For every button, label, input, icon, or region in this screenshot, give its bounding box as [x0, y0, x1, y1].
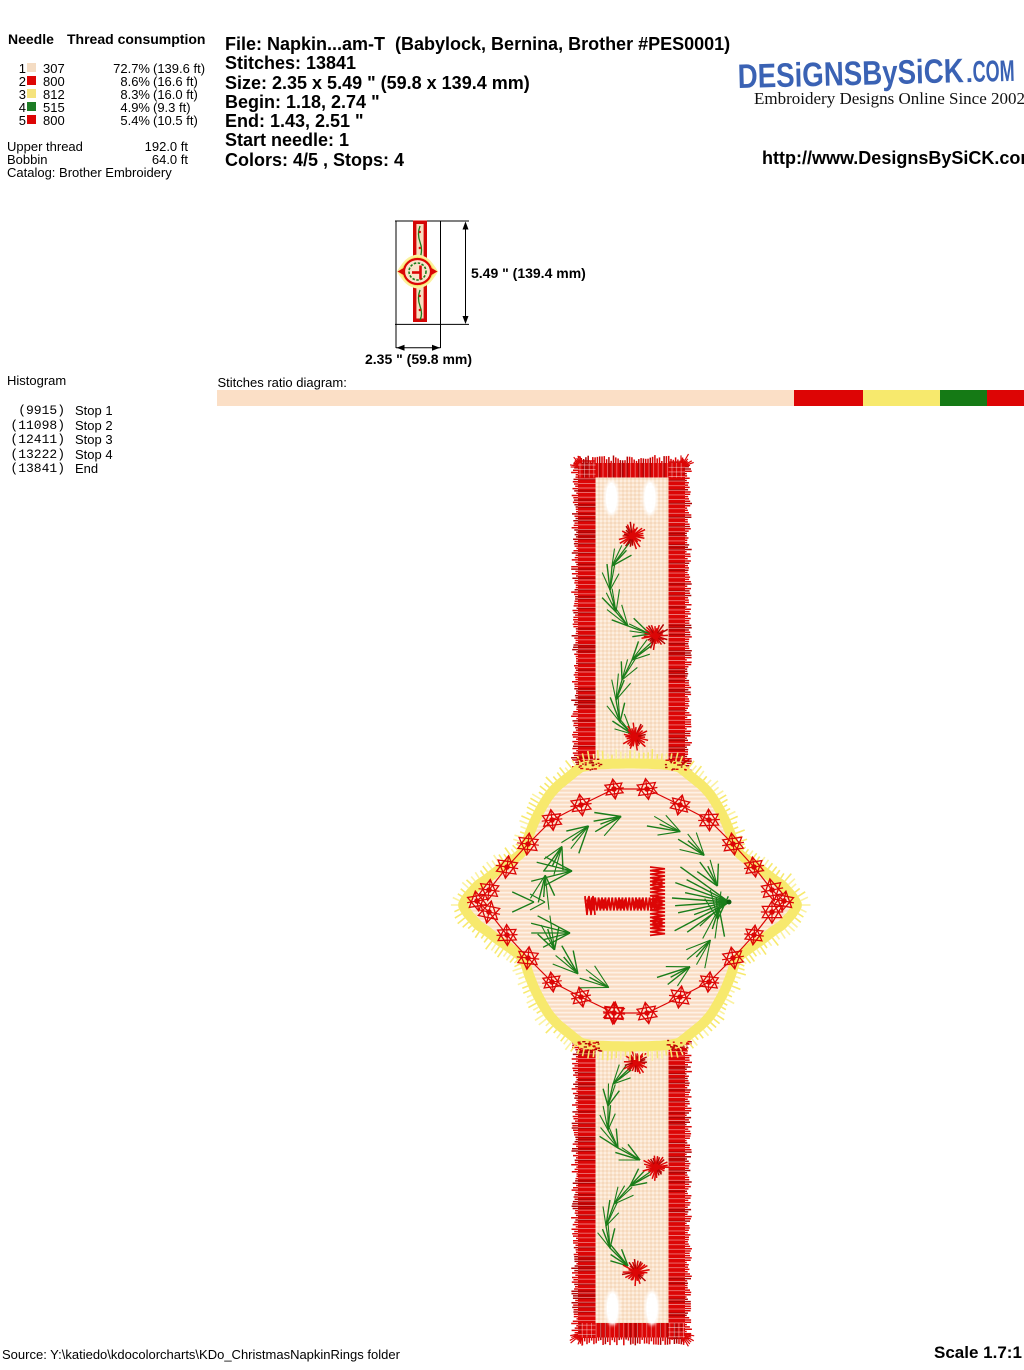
svg-text:COM: COM: [972, 55, 1015, 89]
svg-text:Embroidery Designs Online Sinc: Embroidery Designs Online Since 2002: [754, 89, 1024, 108]
